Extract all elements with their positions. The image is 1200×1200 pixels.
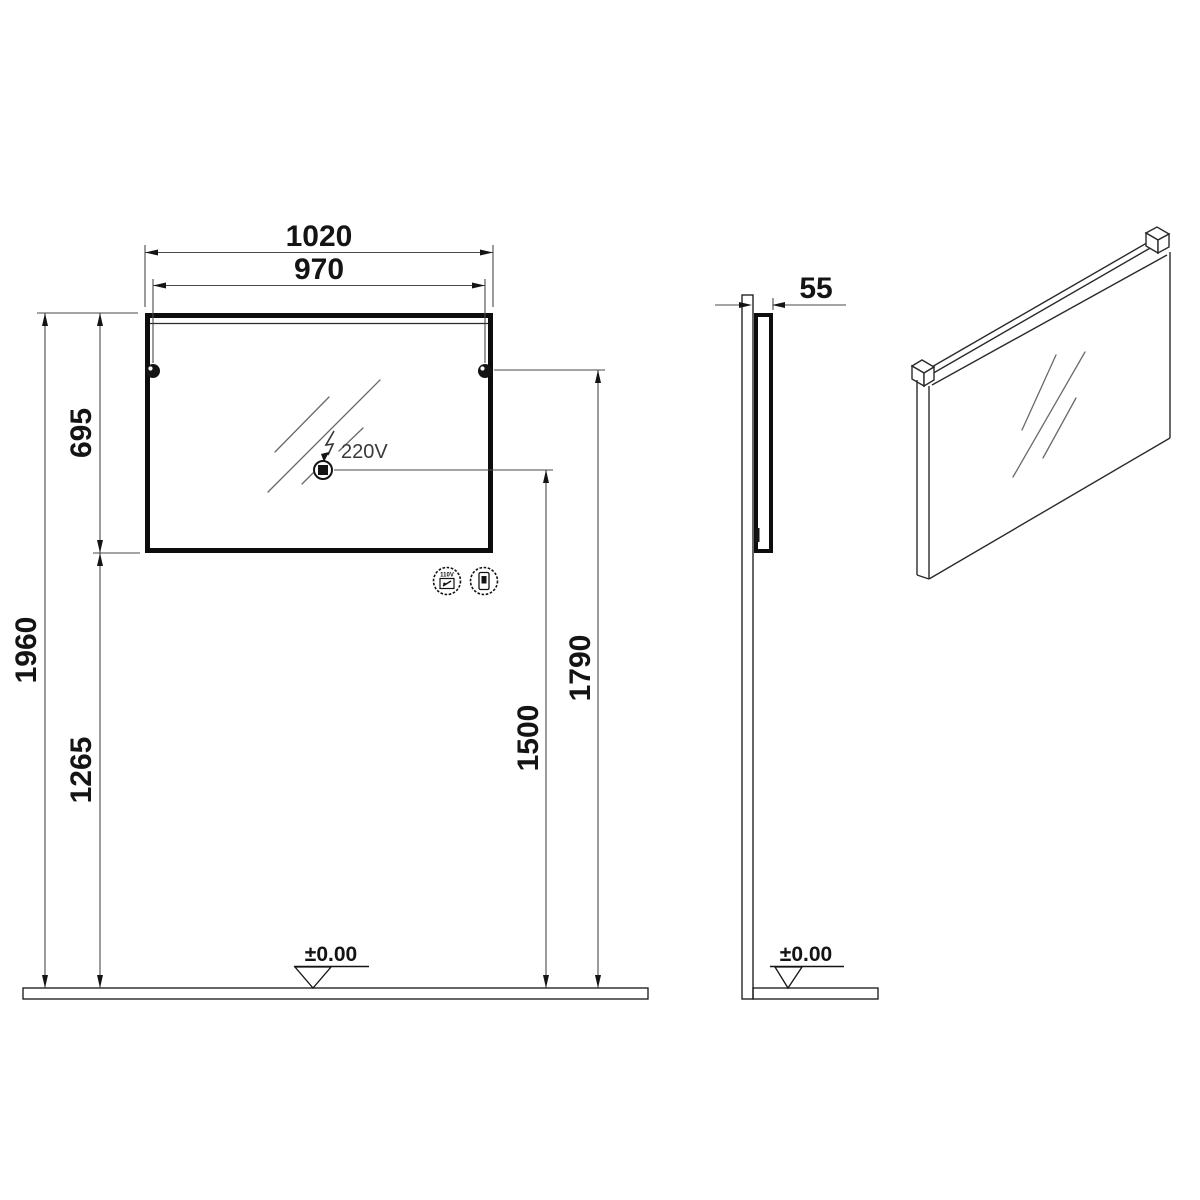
svg-text:695: 695: [65, 408, 98, 458]
front-floor-level-marker: ±0.00: [294, 943, 369, 988]
dim-mirror-height: 695 1265: [65, 313, 103, 988]
iso-glass-panel: [929, 252, 1170, 579]
svg-text:55: 55: [799, 272, 832, 305]
side-floor-level-marker: ±0.00: [770, 943, 844, 988]
mirror-frame: [148, 316, 491, 551]
iso-top-rail: [930, 240, 1167, 385]
shaver-socket-icon: 110V: [434, 568, 461, 595]
mirror-dimension-drawing: 220V 110V 1020: [0, 0, 1200, 1200]
svg-text:970: 970: [294, 253, 344, 286]
iso-reflection-lines: [1013, 352, 1085, 477]
dim-floor-to-fixings: 1790: [564, 370, 601, 988]
dim-overall-height: 1960: [10, 313, 48, 988]
mirror-side-profile: [756, 315, 771, 551]
svg-text:±0.00: ±0.00: [780, 943, 832, 966]
side-wall: [742, 295, 753, 999]
svg-text:1790: 1790: [564, 635, 597, 702]
isometric-view: [912, 227, 1170, 579]
technical-drawing-page: 220V 110V 1020: [0, 0, 1200, 1200]
svg-text:1960: 1960: [10, 617, 43, 684]
lightning-arrow-icon: [321, 431, 334, 462]
dim-fixing-centers: 970: [153, 253, 485, 363]
iso-left-bracket: [912, 360, 934, 386]
switch-icon: [471, 568, 498, 595]
side-view: 55 ±0.00: [715, 272, 878, 999]
svg-text:±0.00: ±0.00: [305, 943, 357, 966]
svg-text:110V: 110V: [440, 573, 454, 579]
side-floor: [753, 988, 878, 999]
svg-text:1265: 1265: [65, 737, 98, 804]
fixing-screw-right: [478, 364, 492, 378]
front-floor: [23, 988, 648, 999]
front-view: 220V 110V 1020: [10, 220, 648, 999]
dim-depth: 55: [715, 272, 846, 310]
svg-text:1500: 1500: [512, 705, 545, 772]
dim-floor-to-socket: 1500: [512, 470, 549, 988]
power-connection-point: [314, 461, 332, 479]
fixing-screw-left: [146, 364, 160, 378]
svg-text:1020: 1020: [286, 220, 353, 253]
voltage-label: 220V: [341, 441, 388, 463]
iso-left-edge: [917, 380, 929, 579]
lower-bracket: [755, 528, 760, 542]
